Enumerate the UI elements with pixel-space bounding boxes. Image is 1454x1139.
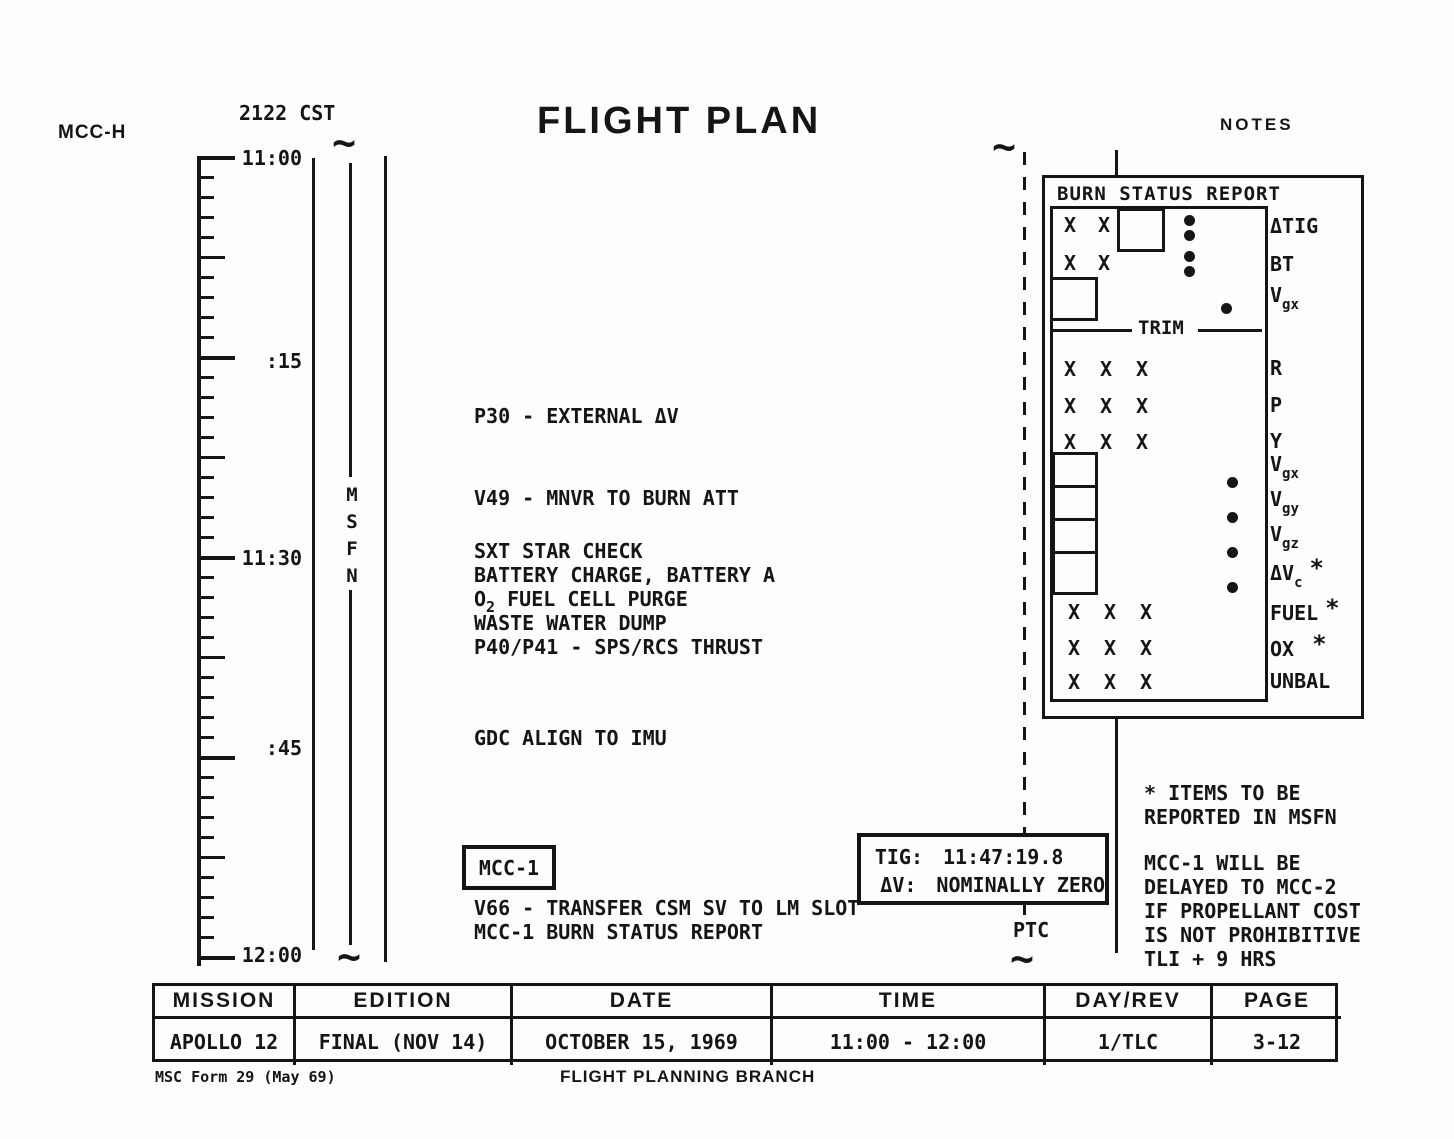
time-label-45: :45 <box>197 736 302 760</box>
activity-sxt: SXT STAR CHECK <box>474 539 643 563</box>
mcc-note-line: TLI + 9 HRS <box>1144 947 1276 971</box>
table-value-time: 11:00 - 12:00 <box>773 1019 1046 1065</box>
ruler-tick <box>200 896 214 899</box>
break-tilde-bottom: ~ <box>337 942 361 972</box>
activity-v49: V49 - MNVR TO BURN ATT <box>474 486 739 510</box>
mcc1-flag-label: MCC-1 <box>479 856 539 880</box>
notes-heading: NOTES <box>1220 115 1294 135</box>
bsr-label-vgx: Vgx <box>1270 452 1299 476</box>
ruler-tick <box>200 496 214 499</box>
status-dot <box>1227 512 1238 523</box>
ruler-tick <box>200 236 214 239</box>
ruler-tick <box>200 676 214 679</box>
ruler-tick <box>200 436 214 439</box>
status-dot <box>1184 230 1195 241</box>
table-value-mission: APOLLO 12 <box>155 1019 296 1065</box>
bsr-label-vgy: Vgy <box>1270 487 1299 511</box>
tig-row: TIG: 11:47:19.8 <box>867 843 1105 871</box>
x-mark: X <box>1064 357 1076 381</box>
table-header-edition: EDITION <box>296 986 513 1019</box>
entry-box <box>1052 551 1098 595</box>
ruler-tick <box>200 296 214 299</box>
time-label-1130: 11:30 <box>197 546 302 570</box>
bsr-label-fuel: FUEL* <box>1270 598 1340 626</box>
tig-value: 11:47:19.8 <box>943 843 1063 871</box>
mcc-note-line: MCC-1 WILL BE <box>1144 851 1301 875</box>
ruler-tick <box>200 876 214 879</box>
break-tilde-top: ~ <box>332 128 356 158</box>
status-dot <box>1184 251 1195 262</box>
x-mark: X <box>1064 394 1076 418</box>
activity-p30: P30 - EXTERNAL ΔV <box>474 404 679 428</box>
station-label: MCC-H <box>58 122 126 144</box>
table-value-date: OCTOBER 15, 1969 <box>513 1019 773 1065</box>
trim-divider-left <box>1052 329 1132 332</box>
ruler-tick <box>200 256 225 259</box>
activity-mcc1-report: MCC-1 BURN STATUS REPORT <box>474 920 763 944</box>
table-header-mission: MISSION <box>155 986 296 1019</box>
table-value-dayrev: 1/TLC <box>1046 1019 1213 1065</box>
x-mark: X <box>1064 430 1076 454</box>
ruler-tick <box>200 476 214 479</box>
activity-o2-purge: O2 FUEL CELL PURGE <box>474 587 688 611</box>
bsr-label-vgx-top: Vgx <box>1270 283 1299 307</box>
ruler-tick <box>200 516 214 519</box>
flight-plan-page: MCC-H 2122 CST FLIGHT PLAN NOTES 11:00 :… <box>0 0 1454 1139</box>
x-mark: X <box>1068 600 1080 624</box>
table-header-date: DATE <box>513 986 773 1019</box>
bsr-label-r: R <box>1270 356 1282 380</box>
event-dashed-line <box>1023 152 1026 924</box>
ruler-tick <box>200 616 214 619</box>
ptc-tilde: ~ <box>1010 944 1034 974</box>
activity-battery: BATTERY CHARGE, BATTERY A <box>474 563 775 587</box>
ruler-tick <box>200 416 214 419</box>
x-mark: X <box>1068 670 1080 694</box>
bsr-label-unbal: UNBAL <box>1270 669 1330 693</box>
trim-divider-right <box>1198 329 1262 332</box>
x-mark: X <box>1100 430 1112 454</box>
ruler-tick <box>200 176 214 179</box>
bsr-label-vgz: Vgz <box>1270 522 1299 546</box>
o2-rest: FUEL CELL PURGE <box>495 587 688 611</box>
cst-time-label: 2122 CST <box>239 101 335 125</box>
ruler-tick <box>200 856 225 859</box>
dv-row: ΔV: NOMINALLY ZERO <box>867 871 1105 899</box>
activity-gdc: GDC ALIGN TO IMU <box>474 726 667 750</box>
x-mark: X <box>1136 394 1148 418</box>
x-mark: X <box>1104 636 1116 660</box>
ruler-tick <box>200 836 214 839</box>
msfn-label: MSFN <box>341 484 363 592</box>
x-mark: X <box>1068 636 1080 660</box>
ruler-tick <box>200 916 214 919</box>
x-mark: X <box>1098 251 1110 275</box>
mcc-note-line: IS NOT PROHIBITIVE <box>1144 923 1361 947</box>
msfn-line-upper <box>349 163 352 477</box>
mcc-note-line: DELAYED TO MCC-2 <box>1144 875 1337 899</box>
x-mark: X <box>1140 636 1152 660</box>
status-dot <box>1227 582 1238 593</box>
mcc1-flag-box: MCC-1 <box>462 845 556 890</box>
ruler-tick <box>200 656 225 659</box>
ruler-tick <box>200 576 214 579</box>
dashed-line-tilde-top: ~ <box>992 132 1016 162</box>
x-mark: X <box>1140 670 1152 694</box>
table-value-edition: FINAL (NOV 14) <box>296 1019 513 1065</box>
x-mark: X <box>1104 600 1116 624</box>
x-mark: X <box>1104 670 1116 694</box>
bsr-label-y: Y <box>1270 429 1282 453</box>
tig-label: TIG: <box>867 843 923 871</box>
ruler-tick <box>200 796 214 799</box>
tig-dv-box: TIG: 11:47:19.8 ΔV: NOMINALLY ZERO <box>857 833 1109 905</box>
x-mark: X <box>1098 213 1110 237</box>
ruler-tick <box>200 336 214 339</box>
status-dot <box>1227 477 1238 488</box>
table-header-time: TIME <box>773 986 1046 1019</box>
mission-info-table: MISSION EDITION DATE TIME DAY/REV PAGE A… <box>152 983 1338 1062</box>
ruler-tick <box>200 536 214 539</box>
ruler-tick <box>200 696 214 699</box>
activity-p40: P40/P41 - SPS/RCS THRUST <box>474 635 763 659</box>
ruler-tick <box>200 316 214 319</box>
msfn-line-lower <box>349 590 352 945</box>
o2-base: O <box>474 587 486 611</box>
ruler-tick <box>200 196 214 199</box>
time-label-1100: 11:00 <box>197 146 302 170</box>
x-mark: X <box>1064 213 1076 237</box>
form-number-label: MSC Form 29 (May 69) <box>155 1068 336 1086</box>
bsr-label-dtig: ΔTIG <box>1270 214 1318 238</box>
ruler-tick <box>200 636 214 639</box>
mcc-note-line: IF PROPELLANT COST <box>1144 899 1361 923</box>
bsr-label-p: P <box>1270 393 1282 417</box>
x-mark: X <box>1100 357 1112 381</box>
bsr-label-bt: BT <box>1270 252 1294 276</box>
bsr-label-dvc: ΔVc* <box>1270 558 1324 586</box>
status-dot <box>1184 266 1195 277</box>
x-mark: X <box>1100 394 1112 418</box>
status-dot <box>1227 547 1238 558</box>
ruler-tick <box>200 776 214 779</box>
table-header-dayrev: DAY/REV <box>1046 986 1213 1019</box>
x-mark: X <box>1064 251 1076 275</box>
x-mark: X <box>1136 357 1148 381</box>
asterisk-note-line: REPORTED IN MSFN <box>1144 805 1337 829</box>
ruler-tick <box>200 936 214 939</box>
ruler-tick <box>200 816 214 819</box>
ruler-tick <box>200 276 214 279</box>
entry-box <box>1050 277 1098 321</box>
ruler-tick <box>200 216 214 219</box>
time-label-1200: 12:00 <box>197 943 302 967</box>
burn-status-title: BURN STATUS REPORT <box>1057 183 1281 205</box>
branch-label: FLIGHT PLANNING BRANCH <box>560 1067 815 1087</box>
status-dot <box>1184 215 1195 226</box>
table-value-page: 3-12 <box>1213 1019 1341 1065</box>
entry-box <box>1117 208 1165 252</box>
dv-label: ΔV: <box>867 871 916 899</box>
dv-value: NOMINALLY ZERO <box>936 871 1105 899</box>
track-line-left <box>312 158 315 950</box>
page-title: FLIGHT PLAN <box>537 100 821 143</box>
ruler-tick <box>200 456 225 459</box>
track-line-right <box>384 156 387 962</box>
activity-v66: V66 - TRANSFER CSM SV TO LM SLOT <box>474 896 859 920</box>
status-dot <box>1221 303 1232 314</box>
activity-waste: WASTE WATER DUMP <box>474 611 667 635</box>
x-mark: X <box>1136 430 1148 454</box>
time-label-15: :15 <box>197 349 302 373</box>
ruler-tick <box>200 716 214 719</box>
trim-label: TRIM <box>1138 317 1184 339</box>
ruler-tick <box>200 596 214 599</box>
asterisk-note-line: * ITEMS TO BE <box>1144 781 1301 805</box>
table-header-page: PAGE <box>1213 986 1341 1019</box>
ruler-tick <box>200 376 214 379</box>
ruler-tick <box>200 396 214 399</box>
bsr-label-ox: OX* <box>1270 634 1327 662</box>
x-mark: X <box>1140 600 1152 624</box>
